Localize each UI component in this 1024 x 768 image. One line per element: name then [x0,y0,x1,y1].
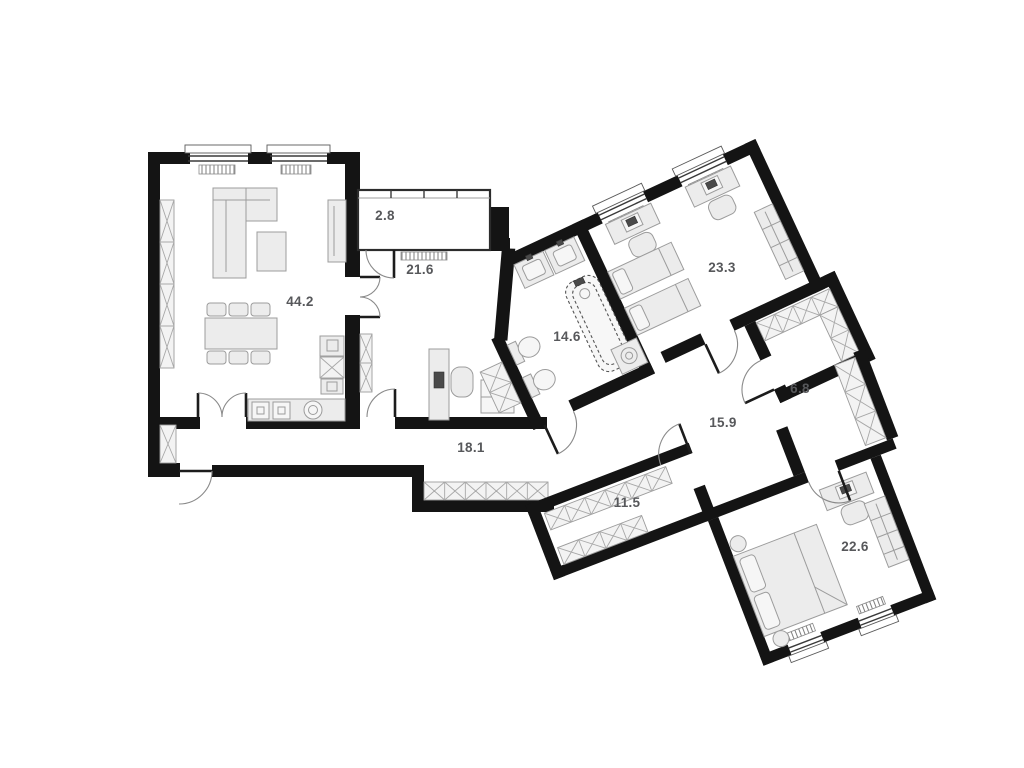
label-living: 44.2 [286,294,313,309]
kitchen-counter [248,399,345,421]
radiator [199,165,235,174]
chair-study [451,367,473,397]
desk-kids-2 [685,166,749,227]
radiator [856,596,885,614]
label-wardrobe-corridor: 11.5 [614,495,641,510]
label-closet: 6.8 [790,381,810,396]
window-master-2 [851,594,899,635]
wing-middle [437,125,876,513]
label-inner-hall: 15.9 [709,415,736,430]
door-closet [732,361,775,404]
label-bathroom: 14.6 [553,329,581,344]
door-bathroom [544,411,587,454]
window-living-2 [267,145,330,174]
label-entrance-hall: 18.1 [457,440,485,455]
floorplan-canvas: 44.2 2.8 21.6 14.6 23.3 6.8 15.9 18.1 11… [0,0,1024,768]
dining-table [205,303,277,364]
door-entrance [179,471,212,504]
radiator [401,252,447,260]
door-kids [705,331,748,374]
kitchen-tall-units [320,336,344,394]
wing-left [148,145,554,512]
window-living-1 [185,145,251,174]
door-balcony [366,250,394,278]
label-study: 21.6 [406,262,434,277]
floorplan-page: 44.2 2.8 21.6 14.6 23.3 6.8 15.9 18.1 11… [0,0,1024,768]
label-kids-bedroom: 23.3 [708,260,736,275]
door-living-study [360,277,380,317]
tv-cabinet [328,200,346,262]
door-living-double [198,393,246,417]
desk-study [429,349,473,420]
label-balcony: 2.8 [375,208,395,223]
kitchen-sink [304,401,322,419]
coffee-table [257,232,286,271]
radiator [281,165,311,174]
label-master-bedroom: 22.6 [841,539,869,554]
door-study-hall [367,389,395,417]
